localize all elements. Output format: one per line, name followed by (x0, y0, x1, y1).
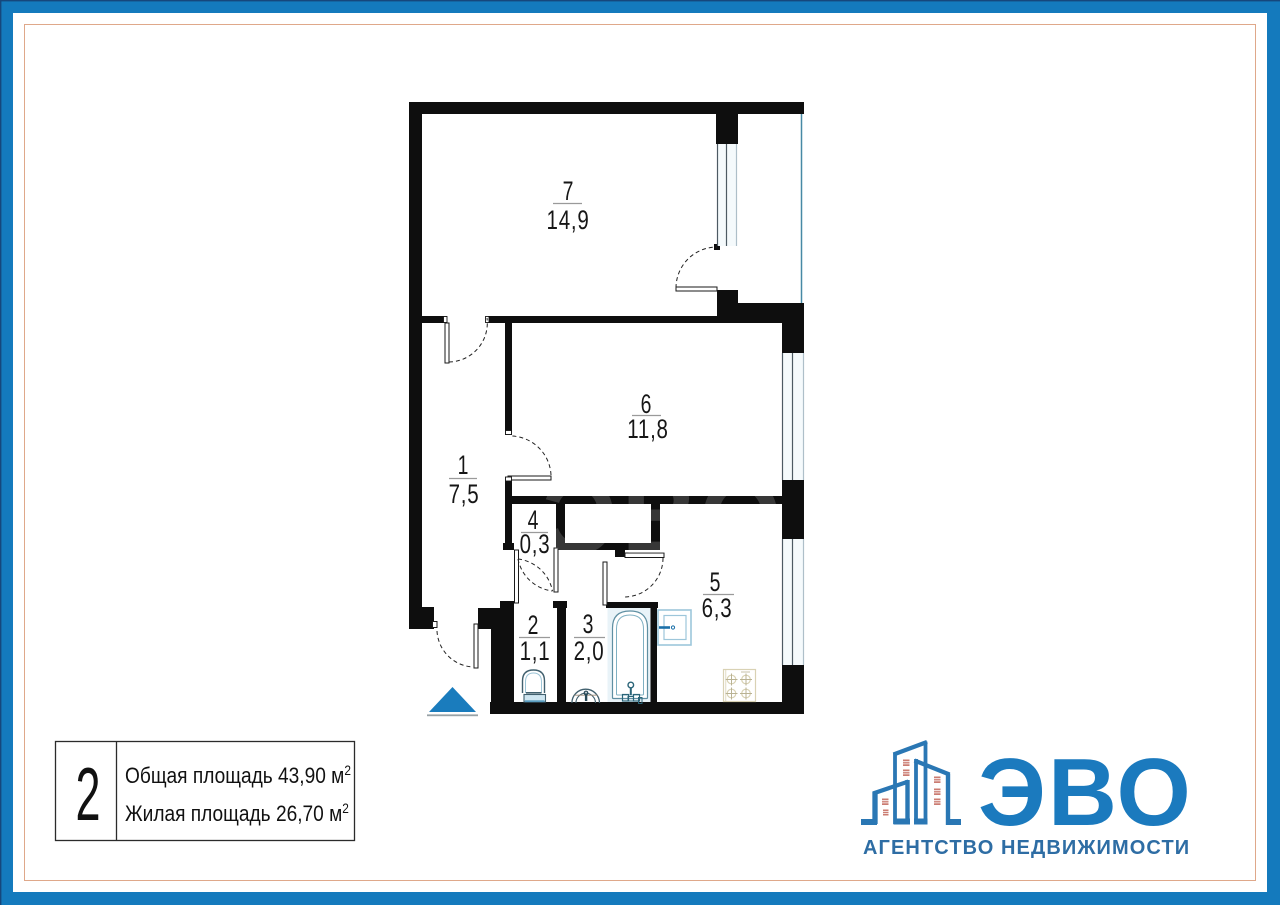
svg-text:1,1: 1,1 (520, 636, 551, 666)
svg-text:Общая площадь 43,90 м2: Общая площадь 43,90 м2 (125, 762, 351, 788)
svg-text:2: 2 (528, 610, 539, 640)
svg-text:7,5: 7,5 (449, 479, 480, 509)
svg-text:2,0: 2,0 (574, 636, 605, 666)
svg-text:0,3: 0,3 (520, 529, 551, 559)
svg-text:2: 2 (75, 753, 100, 837)
svg-text:ЭВО: ЭВО (542, 458, 786, 576)
svg-text:АГЕНТСТВО НЕДВИЖИМОСТИ: АГЕНТСТВО НЕДВИЖИМОСТИ (863, 837, 1190, 859)
svg-text:11,8: 11,8 (627, 414, 668, 444)
svg-text:1: 1 (458, 450, 469, 480)
svg-text:Жилая площадь 26,70 м2: Жилая площадь 26,70 м2 (125, 800, 349, 826)
svg-text:14,9: 14,9 (547, 205, 590, 235)
svg-text:ЭВО: ЭВО (978, 740, 1193, 846)
svg-text:3: 3 (583, 609, 594, 639)
svg-text:6,3: 6,3 (702, 593, 733, 623)
svg-text:7: 7 (563, 176, 574, 206)
svg-text:5: 5 (710, 567, 721, 597)
